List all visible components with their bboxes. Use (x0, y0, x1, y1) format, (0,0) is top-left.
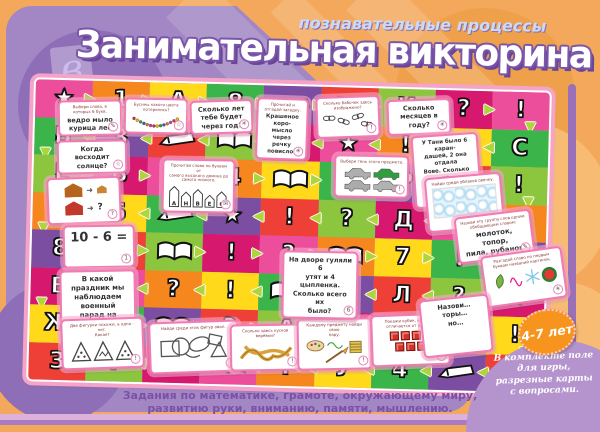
path-arrow-icon: ◀ (198, 132, 209, 146)
path-arrow-icon: ◀ (196, 207, 207, 221)
path-arrow-icon: ▶ (84, 92, 95, 106)
path-arrow-icon: ◀ (310, 210, 321, 224)
path-arrow-icon: ▶ (427, 101, 438, 115)
path-arrow-icon: ▶ (313, 98, 324, 112)
path-arrow-icon: ▶ (197, 170, 208, 184)
path-arrow-icon: ▶ (256, 96, 267, 110)
path-arrow-icon: ◀ (308, 285, 319, 299)
path-arrow-icon: ◀ (80, 279, 91, 293)
path-arrow-icon: ◀ (249, 359, 260, 373)
path-arrow-icon: ▶ (421, 325, 432, 339)
path-arrow-icon: ◀ (253, 209, 264, 223)
board-tile: И (488, 241, 546, 280)
path-arrow-icon: ◀ (135, 356, 146, 370)
board-tile: 7 (489, 204, 547, 243)
path-arrow-icon: ◀ (369, 137, 380, 151)
path-arrow-icon: ◀ (479, 290, 490, 304)
path-arrow-icon: ▶ (79, 317, 90, 331)
path-arrow-icon: ◀ (306, 360, 317, 374)
path-arrow-icon: ▶ (138, 243, 149, 257)
path-arrow-icon: ▶ (140, 168, 151, 182)
path-arrow-icon: ▶ (423, 251, 434, 265)
path-arrow-icon: ▶ (254, 171, 265, 185)
path-arrow-icon: ◀ (367, 212, 378, 226)
path-arrow-icon: ◀ (424, 213, 435, 227)
path-arrow-icon: ◀ (251, 284, 262, 298)
path-arrow-icon: ▶ (364, 324, 375, 338)
path-arrow-icon: ▶ (368, 174, 379, 188)
path-arrow-icon: ▶ (252, 246, 263, 260)
path-arrow-icon: ◀ (255, 134, 266, 148)
path-arrow-icon: ◀ (194, 282, 205, 296)
path-arrow-icon: ◀ (192, 357, 203, 371)
game-board: ★1А8И?!▶▶▶▶▶▶▶▶▼ВЗУ★!ЭС◀◀◀◀◀◀◀◀▼ЁЬТ4ОРЭ!… (28, 79, 550, 392)
path-arrow-icon: ◀ (82, 204, 93, 218)
path-arrow-icon: ◀ (139, 206, 150, 220)
path-arrow-icon: ▶ (366, 249, 377, 263)
path-arrow-icon: ◀ (78, 354, 89, 368)
path-arrow-icon: ▶ (480, 252, 491, 266)
path-arrow-icon: ▶ (136, 318, 147, 332)
game-poster: в познавательные процессы Занимательная … (0, 0, 600, 432)
path-arrow-icon: ◀ (312, 135, 323, 149)
path-arrow-icon: ▶ (199, 95, 210, 109)
path-arrow-icon: ▶ (482, 177, 493, 191)
path-arrow-icon: ▶ (250, 321, 261, 335)
board-tile: ! (490, 166, 548, 205)
path-arrow-icon: ◀ (141, 131, 152, 145)
path-arrow-icon: ▶ (81, 242, 92, 256)
path-arrow-icon: ▶ (370, 99, 381, 113)
path-arrow-icon: ▶ (425, 176, 436, 190)
path-arrow-icon: ◀ (426, 138, 437, 152)
path-arrow-icon: ▶ (307, 323, 318, 337)
path-arrow-icon: ▶ (478, 327, 489, 341)
path-arrow-icon: ▶ (195, 245, 206, 259)
path-arrow-icon: ▶ (309, 248, 320, 262)
path-arrow-icon: ▶ (311, 173, 322, 187)
path-arrow-icon: ◀ (420, 363, 431, 377)
board-tile: ! (492, 91, 550, 130)
board-tile: С (491, 129, 549, 168)
path-arrow-icon: ▶ (484, 102, 495, 116)
path-arrow-icon: ◀ (137, 281, 148, 295)
path-arrow-icon: ▶ (82, 167, 93, 181)
path-arrow-icon: ◀ (422, 288, 433, 302)
path-arrow-icon: ◀ (481, 215, 492, 229)
path-arrow-icon: ▶ (193, 320, 204, 334)
path-arrow-icon: ◀ (483, 140, 494, 154)
path-arrow-icon: ◀ (83, 129, 94, 143)
path-arrow-icon: ◀ (363, 361, 374, 375)
bottom-caption: Задания по математике, грамоте, окружающ… (0, 389, 600, 415)
path-arrow-icon: ▶ (142, 93, 153, 107)
path-arrow-icon: ◀ (365, 287, 376, 301)
